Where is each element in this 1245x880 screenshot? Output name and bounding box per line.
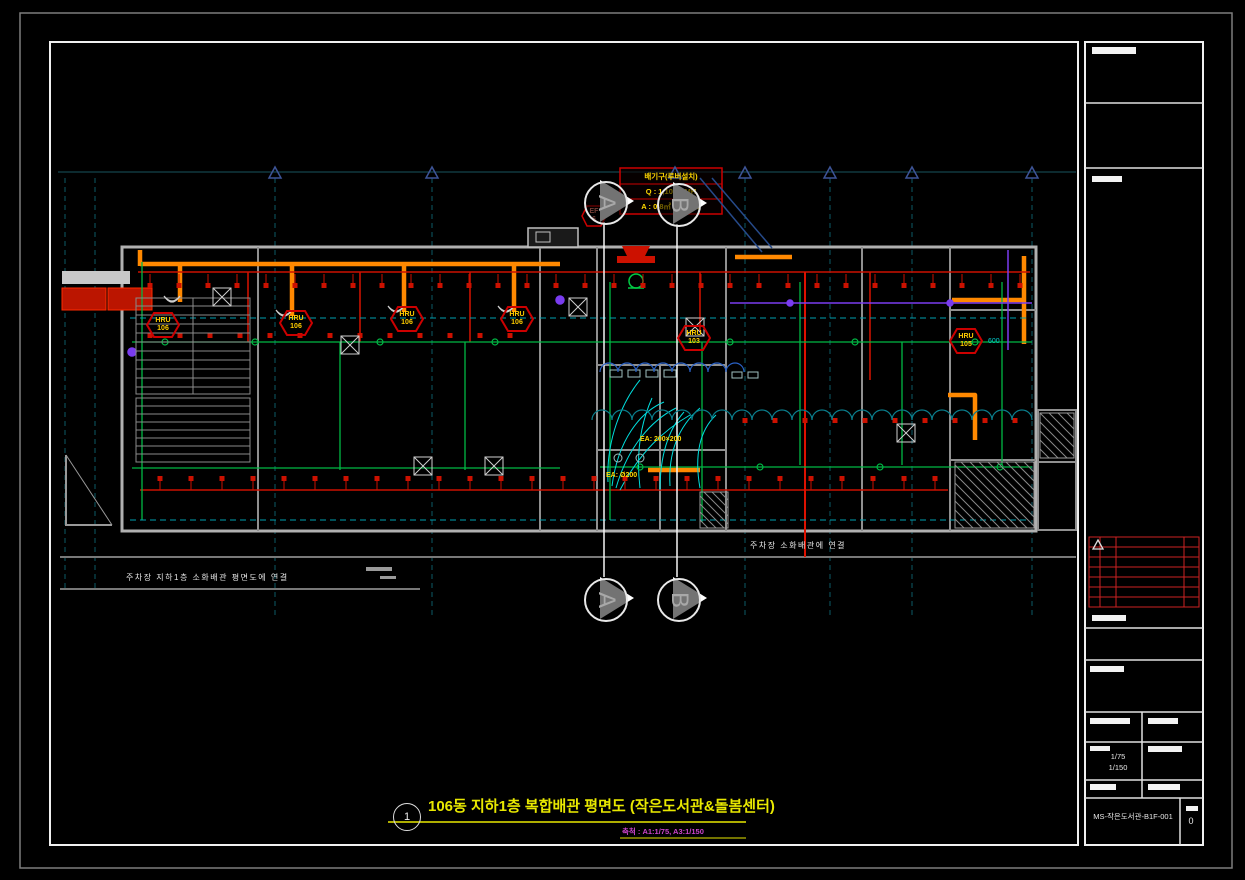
drawing-number: MS-작은도서관-B1F-001	[1086, 811, 1180, 822]
scale-value-2: 1/150	[1100, 763, 1136, 772]
dim-600: 600	[988, 338, 1000, 345]
equipment-pads	[62, 271, 152, 310]
hru-tag-5: HRU 103	[677, 325, 711, 351]
label-chip	[1148, 784, 1180, 790]
label-chip	[1148, 746, 1182, 752]
section-marker-b-top: B	[657, 183, 737, 223]
parking-note-left: 주차장 지하1층 소화배관 평면도에 연결	[126, 572, 289, 583]
cad-sheet: { "plan": { "sections": { "a": "A", "b":…	[0, 0, 1245, 880]
hru-tag-1: HRU 106	[146, 312, 180, 338]
drawing-title: 106동 지하1층 복합배관 평면도 (작은도서관&돌봄센터)	[428, 795, 775, 816]
section-marker-a-bottom: A	[584, 578, 664, 618]
section-marker-b-bottom: B	[657, 578, 737, 618]
supply-ducts	[140, 250, 1024, 470]
building-walls	[66, 228, 1076, 531]
label-chip	[1090, 784, 1116, 790]
drawing-scale-note: 축척 : A1:1/75, A3:1/150	[622, 826, 704, 837]
title-block-dividers	[1085, 103, 1203, 845]
label-chip	[1092, 47, 1136, 54]
section-marker-a-top: A	[584, 181, 664, 221]
floor-plan-canvas	[0, 0, 1245, 880]
label-chip	[1090, 666, 1124, 672]
label-chip	[1090, 718, 1130, 724]
hru-tag-3: HRU 106	[390, 306, 424, 332]
label-chip	[1092, 176, 1122, 182]
exhaust-fan-icon	[617, 246, 655, 288]
sanitary-piping	[132, 262, 1032, 522]
parking-note-right: 주차장 소화배관에 연결	[750, 540, 846, 551]
hru-tag-2: HRU 106	[279, 310, 313, 336]
drawing-frame	[50, 42, 1078, 845]
duct-size-b: EA: Ø200	[606, 472, 637, 479]
revision-number: 0	[1182, 816, 1200, 826]
hru-tag-6: HRU 105	[949, 328, 983, 354]
duct-size-a: EA: 200×200	[640, 436, 681, 443]
label-chip	[1090, 746, 1110, 751]
title-number-bubble: 1	[393, 803, 421, 831]
scale-value-1: 1/75	[1100, 752, 1136, 761]
fire-piping	[138, 272, 1030, 557]
revision-table	[1089, 537, 1199, 607]
hru-tag-4: HRU 106	[500, 306, 534, 332]
label-chip	[1148, 718, 1178, 724]
revision-triangle-icon	[1093, 540, 1103, 549]
label-chip	[1186, 806, 1198, 811]
label-chip	[1092, 615, 1126, 621]
title-block-frame	[1085, 42, 1203, 845]
